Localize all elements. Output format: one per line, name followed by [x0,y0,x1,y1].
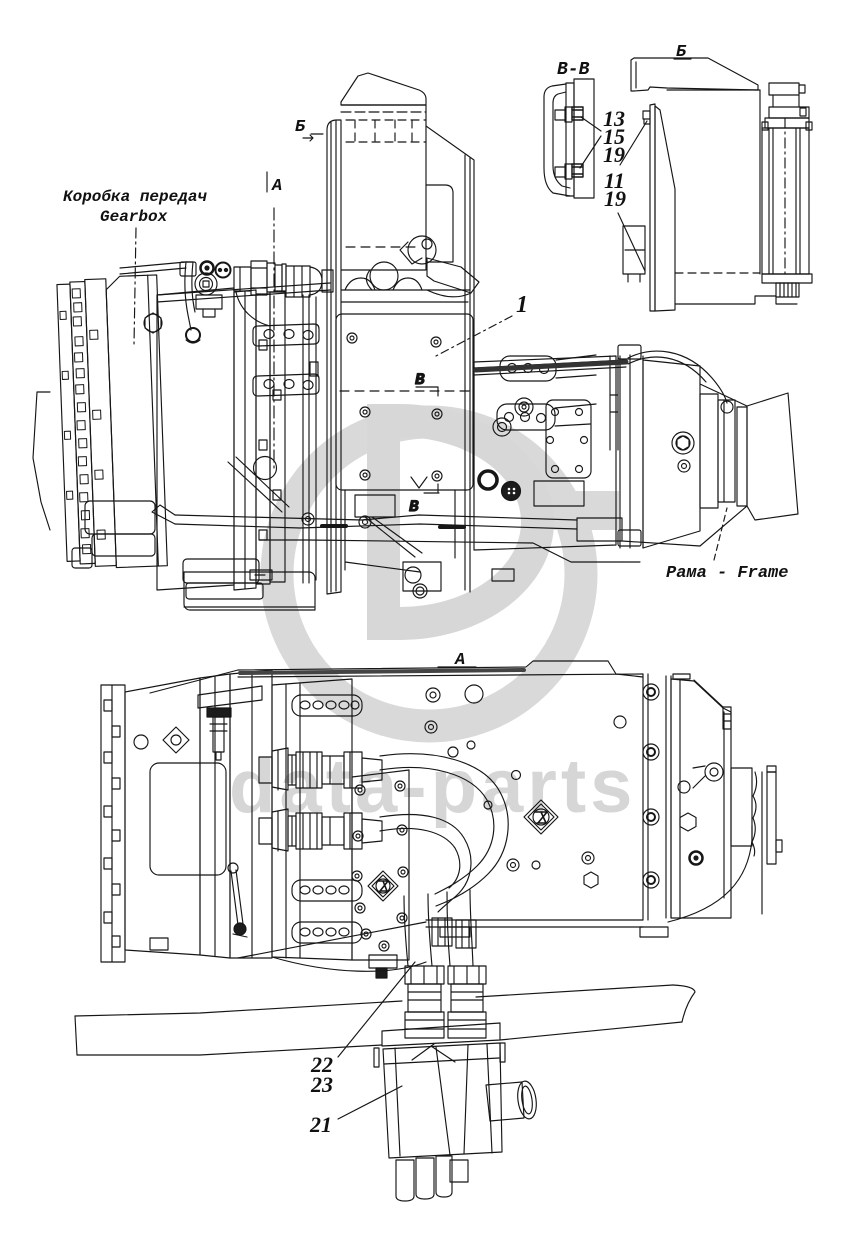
svg-text:А: А [454,651,465,670]
svg-text:В-В: В-В [557,60,590,80]
svg-text:Б: Б [295,118,306,137]
svg-text:23: 23 [310,1072,333,1097]
svg-text:21: 21 [309,1112,332,1137]
svg-text:А: А [271,177,282,196]
svg-text:1: 1 [516,292,528,318]
svg-text:В: В [409,498,419,516]
svg-text:Рама - Frame: Рама - Frame [666,564,788,583]
svg-text:Б: Б [676,43,687,62]
svg-text:Коробка передач: Коробка передач [63,188,207,206]
svg-text:19: 19 [603,142,625,167]
svg-text:В: В [415,371,425,389]
svg-text:Gearbox: Gearbox [100,208,168,226]
svg-text:19: 19 [604,186,626,211]
